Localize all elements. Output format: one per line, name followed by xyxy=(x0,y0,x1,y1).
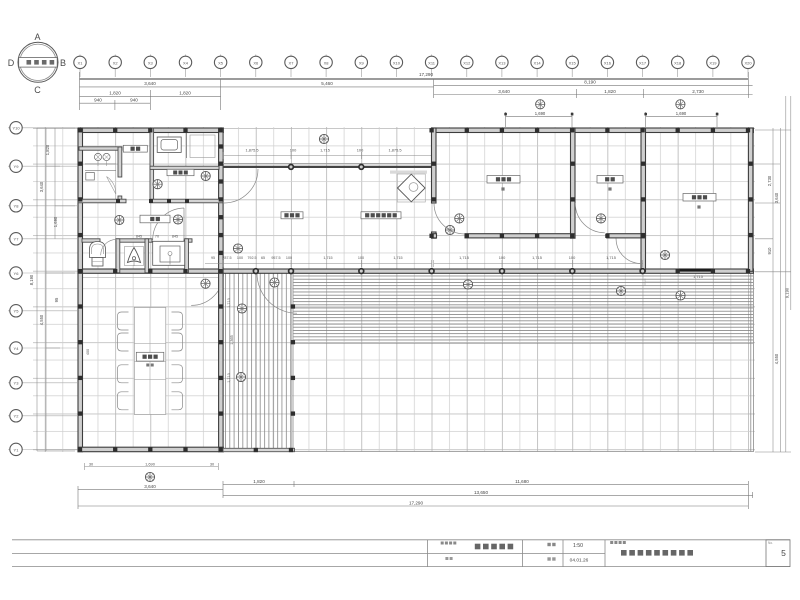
svg-text:65: 65 xyxy=(261,256,265,260)
svg-text:1,690: 1,690 xyxy=(535,111,546,116)
svg-text:X9: X9 xyxy=(359,60,365,65)
svg-text:940: 940 xyxy=(94,98,102,103)
svg-text:5,460: 5,460 xyxy=(321,81,333,86)
svg-text:845: 845 xyxy=(136,235,142,239)
svg-text:787.5: 787.5 xyxy=(222,256,231,260)
svg-text:70: 70 xyxy=(155,235,159,239)
svg-text:1,820: 1,820 xyxy=(253,479,265,484)
svg-text:100: 100 xyxy=(237,256,243,260)
svg-text:Y6: Y6 xyxy=(14,271,20,276)
svg-text:1,715: 1,715 xyxy=(693,274,703,279)
svg-text:D: D xyxy=(8,58,15,68)
svg-text:2,730: 2,730 xyxy=(767,175,772,186)
svg-text:Y9: Y9 xyxy=(14,164,20,169)
svg-text:1:50: 1:50 xyxy=(573,543,583,549)
svg-text:X7: X7 xyxy=(289,60,295,65)
svg-text:X20: X20 xyxy=(744,60,752,65)
svg-text:1,713: 1,713 xyxy=(227,298,231,308)
svg-text:1,715: 1,715 xyxy=(532,255,542,260)
svg-text:A: A xyxy=(34,32,40,42)
svg-text:1,715: 1,715 xyxy=(393,256,402,260)
svg-text:8,190: 8,190 xyxy=(584,80,596,85)
svg-text:No.: No. xyxy=(768,541,773,545)
svg-text:940: 940 xyxy=(130,98,138,103)
svg-text:1,715: 1,715 xyxy=(323,256,332,260)
svg-text:9,190: 9,190 xyxy=(785,287,790,298)
svg-text:Y7: Y7 xyxy=(14,237,20,242)
svg-text:Y2: Y2 xyxy=(14,414,20,419)
svg-text:X3: X3 xyxy=(148,60,154,65)
svg-text:95: 95 xyxy=(54,297,59,302)
svg-text:1,820: 1,820 xyxy=(179,91,191,96)
svg-text:2,730: 2,730 xyxy=(692,89,704,94)
svg-text:1,715: 1,715 xyxy=(459,255,469,260)
svg-text:X14: X14 xyxy=(534,60,542,65)
svg-text:400: 400 xyxy=(86,349,90,355)
svg-text:X5: X5 xyxy=(218,60,224,65)
svg-text:1,820: 1,820 xyxy=(45,144,50,155)
svg-text:1,820: 1,820 xyxy=(109,91,121,96)
svg-text:95: 95 xyxy=(211,256,215,260)
svg-text:3,640: 3,640 xyxy=(144,484,156,489)
svg-text:100: 100 xyxy=(286,256,292,260)
svg-text:X19: X19 xyxy=(709,60,717,65)
svg-text:8,190: 8,190 xyxy=(29,274,34,285)
svg-text:100: 100 xyxy=(499,255,506,260)
svg-text:100: 100 xyxy=(569,255,576,260)
svg-text:1,365: 1,365 xyxy=(230,335,234,345)
svg-text:X12: X12 xyxy=(463,60,471,65)
svg-text:100: 100 xyxy=(358,256,364,260)
svg-text:3,640: 3,640 xyxy=(144,81,156,86)
svg-text:17,290: 17,290 xyxy=(409,501,423,506)
svg-text:Y3: Y3 xyxy=(14,381,20,386)
svg-text:3,640: 3,640 xyxy=(39,181,44,192)
svg-text:3,640: 3,640 xyxy=(498,89,510,94)
svg-text:1,713: 1,713 xyxy=(227,373,231,383)
svg-text:3,640: 3,640 xyxy=(774,192,779,203)
svg-text:X11: X11 xyxy=(428,60,436,65)
svg-text:11,680: 11,680 xyxy=(515,479,529,484)
svg-text:X15: X15 xyxy=(569,60,577,65)
svg-text:1,820: 1,820 xyxy=(604,89,616,94)
svg-text:X17: X17 xyxy=(639,60,647,65)
svg-text:17,290: 17,290 xyxy=(419,72,433,77)
svg-text:1,875.5: 1,875.5 xyxy=(389,147,402,152)
svg-text:4,550: 4,550 xyxy=(774,353,779,364)
svg-text:1,690: 1,690 xyxy=(53,216,58,227)
svg-text:X8: X8 xyxy=(324,60,330,65)
svg-text:792.5: 792.5 xyxy=(247,256,256,260)
svg-text:1,875.5: 1,875.5 xyxy=(246,147,259,152)
svg-text:Y10: Y10 xyxy=(12,126,20,131)
svg-text:X18: X18 xyxy=(674,60,682,65)
svg-text:100: 100 xyxy=(290,147,297,152)
svg-text:Y4: Y4 xyxy=(14,346,20,351)
svg-text:1,715: 1,715 xyxy=(606,255,616,260)
svg-text:X2: X2 xyxy=(113,60,119,65)
svg-text:X10: X10 xyxy=(393,60,401,65)
svg-text:845: 845 xyxy=(172,235,178,239)
svg-text:B: B xyxy=(60,58,66,68)
svg-text:X16: X16 xyxy=(604,60,612,65)
svg-text:100: 100 xyxy=(357,147,364,152)
svg-text:Y5: Y5 xyxy=(14,309,20,314)
svg-text:X13: X13 xyxy=(498,60,506,65)
svg-text:910: 910 xyxy=(767,247,772,255)
svg-text:13,650: 13,650 xyxy=(474,490,488,495)
svg-text:957.5: 957.5 xyxy=(271,256,280,260)
svg-text:X1: X1 xyxy=(78,60,84,65)
svg-text:1,690: 1,690 xyxy=(676,111,687,116)
svg-text:04.01.26: 04.01.26 xyxy=(570,558,589,564)
svg-text:Y8: Y8 xyxy=(14,204,20,209)
svg-text:4,550: 4,550 xyxy=(39,314,44,325)
svg-text:5: 5 xyxy=(781,548,786,558)
svg-text:Y1: Y1 xyxy=(14,447,20,452)
svg-text:1,715: 1,715 xyxy=(320,147,330,152)
svg-text:X4: X4 xyxy=(183,60,189,65)
svg-text:X6: X6 xyxy=(253,60,259,65)
svg-text:C: C xyxy=(34,85,41,95)
svg-text:1,690: 1,690 xyxy=(145,462,156,467)
